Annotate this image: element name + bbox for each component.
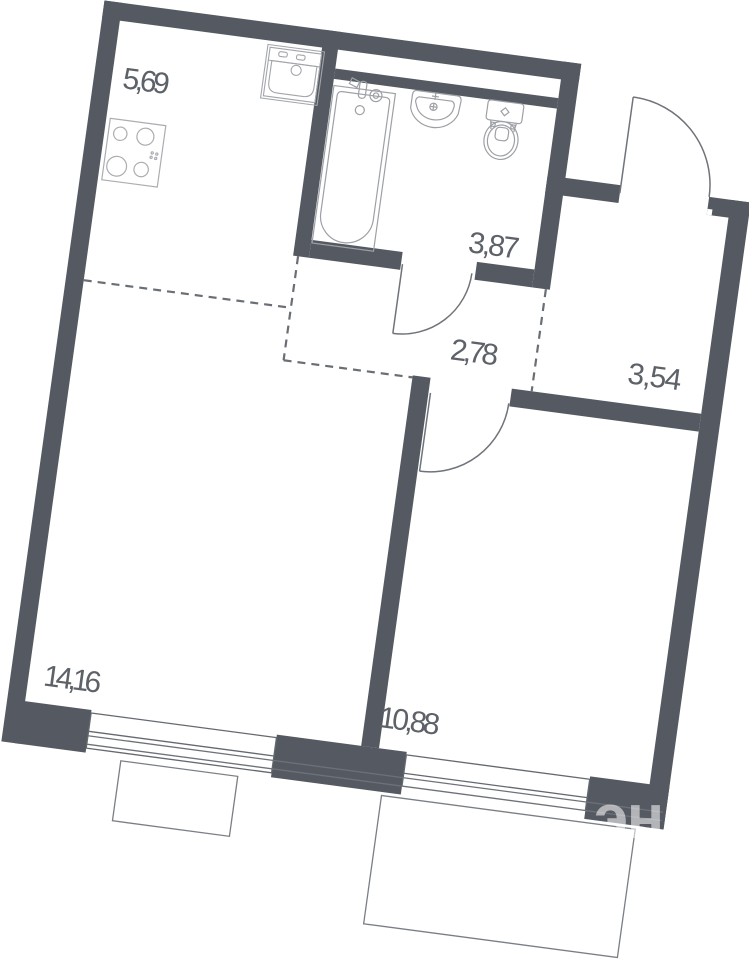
svg-text:2,78: 2,78: [448, 333, 500, 372]
svg-text:эн: эн: [594, 783, 663, 852]
svg-text:10,88: 10,88: [377, 701, 442, 742]
svg-text:3,87: 3,87: [466, 226, 521, 265]
svg-text:5,69: 5,69: [121, 62, 172, 101]
svg-text:14,16: 14,16: [42, 660, 104, 700]
svg-text:3,54: 3,54: [626, 357, 684, 397]
